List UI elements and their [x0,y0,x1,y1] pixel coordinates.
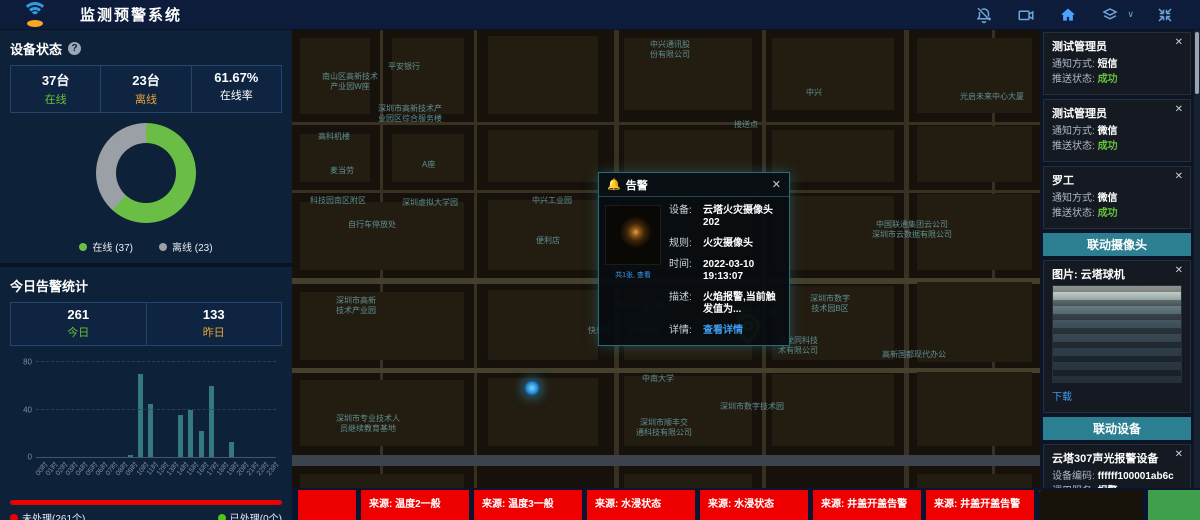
alert-field-value: 火灾摄像头 [703,238,753,250]
map-building-block [488,200,598,270]
bar-12时: 12时 [156,362,165,457]
stat-today: 261 今日 [11,303,147,345]
card-row: 设备编码: ffffff100001ab6c [1052,469,1182,484]
map-device-dot[interactable] [525,381,539,395]
map-building-block [917,372,1032,446]
map-building-block [300,292,464,360]
card-close-icon[interactable]: ✕ [1175,37,1183,48]
online-count: 37台 [11,70,100,89]
map-label: 深圳市数字 技术园B区 [810,294,850,314]
right-panel: ✕测试管理员通知方式: 短信推送状态: 成功✕测试管理员通知方式: 微信推送状态… [1040,30,1194,488]
offline-count: 23台 [101,70,190,89]
map-label: 中兴 [806,88,822,98]
map-building-block [300,202,464,270]
map-building-block [300,474,464,488]
bar-00时: 00时 [36,362,45,457]
camera-image[interactable] [1052,285,1182,383]
bar-19时: 19时 [227,362,236,457]
bar-08时: 08时 [116,362,125,457]
map-label: 平安银行 [388,62,420,72]
alert-fields: 设备:云塔火灾摄像头202规则:火灾摄像头时间:2022-03-10 19:13… [669,205,781,337]
map-label: 中南大学 [642,374,674,384]
device-status-donut-wrap: 在线 (37) 离线 (23) [10,123,282,254]
legend-offline: 离线 (23) [159,239,213,254]
bar-17时: 17时 [207,362,216,457]
card-close-icon[interactable]: ✕ [1175,171,1183,182]
y-tick-40: 40 [16,405,32,414]
map-building-block [488,130,598,182]
card-row: 推送状态: 成功 [1052,72,1182,87]
alert-popup: 🔔 告警 ✕ 共1张, 查看 设备:云塔火灾摄像头202规则:火灾摄像头时间:2… [598,172,790,346]
linked-device-header[interactable]: 联动设备 [1043,417,1191,440]
alert-field: 时间:2022-03-10 19:13:07 [669,259,781,283]
bar-04时: 04时 [76,362,85,457]
unhandled-legend: 未处理(261个) [10,510,85,520]
map-building-block [488,290,598,360]
legend-online: 在线 (37) [79,239,133,254]
bar-02时: 02时 [56,362,65,457]
card-row: 推送状态: 成功 [1052,139,1182,154]
card-row: 通知方式: 短信 [1052,57,1182,72]
bar-20时: 20时 [237,362,246,457]
map-label: 便利店 [536,236,560,246]
alert-field-value: 火焰报警,当前触发值为... [703,292,781,316]
card-close-icon[interactable]: ✕ [1175,104,1183,115]
map-building-block [772,38,894,110]
alert-tile[interactable]: 来源: 水浸状态 [700,490,808,520]
linked-camera-header[interactable]: 联动摄像头 [1043,233,1191,256]
alert-tile[interactable]: 来源: 温度3一般 [474,490,582,520]
card-row: 推送状态: 成功 [1052,206,1182,221]
bar-05时: 05时 [86,362,95,457]
alert-snapshot-caption[interactable]: 共1张, 查看 [605,270,661,280]
map-label: 中国联通集团云公司 深圳市云数据有限公司 [872,220,952,240]
bar-18时: 18时 [217,362,226,457]
online-rate-value: 61.67% [192,70,281,85]
layers-icon[interactable] [1101,6,1121,24]
yesterday-count: 133 [147,307,282,322]
card-title: 测试管理员 [1052,38,1182,54]
offline-label: 离线 [101,91,190,107]
map-label: 南山区高新技术 产业园W座 [322,72,378,92]
bar-09时: 09时 [126,362,135,457]
bar-03时: 03时 [66,362,75,457]
app-logo-icon [12,2,58,28]
alert-popup-header: 🔔 告警 ✕ [599,173,789,197]
device-status-donut-chart [96,123,196,223]
online-label: 在线 [11,91,100,107]
alarm-progress-bar [10,500,282,505]
stat-online: 37台 在线 [11,66,101,112]
alarm-bar-chart-bars: 00时01时02时03时04时05时06时07时08时09时10时11时12时1… [36,362,276,457]
card-row: 通知方式: 微信 [1052,124,1182,139]
alert-field-label: 时间: [669,259,703,283]
map-building-block [624,474,752,488]
card-title: 云塔307声光报警设备 [1052,450,1182,466]
online-rate-label: 在线率 [192,87,281,103]
alert-tile-partial[interactable] [298,490,356,520]
stat-offline: 23台 离线 [101,66,191,112]
exit-fullscreen-icon[interactable] [1156,6,1176,24]
download-link[interactable]: 下载 [1052,388,1072,403]
bar-23时: 23时 [267,362,276,457]
map-label: 深圳市顺丰交 通科技有限公司 [636,418,692,438]
map-label: 自行车停放处 [348,220,396,230]
map-label: 深圳市高新 技术产业园 [336,296,376,316]
map-label: 光启未来中心大厦 [960,92,1024,102]
bar-11时: 11时 [146,362,155,457]
home-icon[interactable] [1059,6,1079,24]
left-panel: 设备状态 ? 37台 在线 23台 离线 61.67% 在线率 [0,30,292,520]
map-label: 科技园南区附区 [310,196,366,206]
view-detail-link[interactable]: 查看详情 [703,325,743,337]
map-label: 深圳市高新技术产 业园区综合服务楼 [378,104,442,124]
map-label: 中兴通讯股 份有限公司 [650,40,690,60]
alert-field: 设备:云塔火灾摄像头202 [669,205,781,229]
video-camera-icon[interactable] [1017,6,1037,24]
map-road [474,30,477,488]
device-status-table: 37台 在线 23台 离线 61.67% 在线率 [10,65,282,113]
bar-13时: 13时 [166,362,175,457]
notification-card: ✕测试管理员通知方式: 短信推送状态: 成功 [1043,32,1191,95]
bar-06时: 06时 [96,362,105,457]
alert-field-value: 云塔火灾摄像头202 [703,205,781,229]
map-label: 深圳虚拟大学园 [402,198,458,208]
y-tick-80: 80 [16,358,32,367]
alarm-progress-legend: 未处理(261个) 已处理(0个) [10,510,282,520]
device-status-section: 设备状态 ? 37台 在线 23台 离线 61.67% 在线率 [0,30,292,254]
map-building-block [392,134,464,182]
alert-field-value: 2022-03-10 19:13:07 [703,259,781,283]
camera-card-close-icon[interactable]: ✕ [1175,265,1183,276]
map-label: 高科机楼 [318,132,350,142]
map-building-block [488,378,598,446]
help-icon[interactable]: ? [68,42,81,55]
bar-21时: 21时 [247,362,256,457]
camera-card-title: 图片: 云塔球机 [1052,266,1182,282]
bar-15时: 15时 [186,362,195,457]
alert-tile[interactable]: 来源: 温度2一般 [361,490,469,520]
chevron-down-icon[interactable]: ∨ [1127,9,1134,20]
bar-07时: 07时 [106,362,115,457]
card-title: 测试管理员 [1052,105,1182,121]
map-road [292,455,1040,466]
alert-tile[interactable]: 来源: 水浸状态 [587,490,695,520]
card-close-icon[interactable]: ✕ [1175,449,1183,460]
alarm-hour-chart: 00时01时02时03时04时05时06时07时08时09时10时11时12时1… [10,354,282,492]
yesterday-label: 昨日 [147,324,282,340]
alert-popup-title: 告警 [626,177,648,193]
map-building-block [917,474,1032,488]
donut-legend: 在线 (37) 离线 (23) [79,239,212,254]
map-building-block [917,126,1032,182]
bar-14时: 14时 [176,362,185,457]
bottom-alert-strip: 来源: 温度2一般来源: 温度3一般来源: 水浸状态来源: 水浸状态来源: 井盖… [292,488,1200,520]
header: 监测预警系统 ∨ [0,0,1200,30]
device-status-title: 设备状态 ? [10,36,282,62]
map-building-block [772,374,894,446]
camera-card: ✕ 图片: 云塔球机 下载 [1043,260,1191,413]
alert-field: 描述:火焰报警,当前触发值为... [669,292,781,316]
bar-01时: 01时 [46,362,55,457]
map-label: 高新国都现代办公 [882,350,946,360]
card-row: 通知方式: 微信 [1052,191,1182,206]
right-scrollbar-thumb[interactable] [1195,32,1199,94]
alarm-progress-fill [10,500,282,505]
monitoring-dashboard: 监测预警系统 ∨ 设备状态 ? [0,0,1200,520]
right-scrollbar [1194,30,1200,488]
card-title: 罗工 [1052,172,1182,188]
map-label: 接送点 [734,120,758,130]
alert-video-thumbnail-green[interactable] [1148,490,1200,520]
map-building-block [772,130,894,182]
map-building-block [300,380,464,446]
alert-field-label: 详情: [669,325,703,337]
bar-16时: 16时 [197,362,206,457]
bar-10时: 10时 [136,362,145,457]
bar-22时: 22时 [257,362,266,457]
alert-tile[interactable]: 来源: 井盖开盖告警 [926,490,1034,520]
stat-online-rate: 61.67% 在线率 [192,66,281,112]
map-label: A座 [422,160,435,170]
device-status-title-text: 设备状态 [10,39,62,58]
today-label: 今日 [11,324,146,340]
map-building-block [488,36,598,114]
bell-mute-icon[interactable] [975,6,995,24]
alert-video-thumbnail[interactable] [1039,490,1143,520]
notification-card: ✕测试管理员通知方式: 微信推送状态: 成功 [1043,99,1191,162]
alert-popup-body: 共1张, 查看 设备:云塔火灾摄像头202规则:火灾摄像头时间:2022-03-… [599,197,789,345]
today-count: 261 [11,307,146,322]
map-canvas[interactable]: 中兴通讯股 份有限公司平安银行南山区高新技术 产业园W座中兴光启未来中心大厦深圳… [292,30,1040,488]
notification-card: ✕罗工通知方式: 微信推送状态: 成功 [1043,166,1191,229]
alert-field-label: 描述: [669,292,703,316]
stat-yesterday: 133 昨日 [147,303,282,345]
today-alarm-section: 今日告警统计 261 今日 133 昨日 00时01时02时03时04时05时0… [0,267,292,520]
y-tick-0: 0 [16,453,32,462]
page-title: 监测预警系统 [80,4,182,25]
alert-popup-close-icon[interactable]: ✕ [772,178,781,191]
map-road [904,30,909,488]
alert-field: 规则:火灾摄像头 [669,238,781,250]
map-label: 麦当劳 [330,166,354,176]
alert-field: 详情:查看详情 [669,325,781,337]
today-alarm-title: 今日告警统计 [10,276,88,295]
alert-tile[interactable]: 来源: 井盖开盖告警 [813,490,921,520]
alert-field-label: 规则: [669,238,703,250]
today-alarm-table: 261 今日 133 昨日 [10,302,282,346]
header-icon-bar: ∨ [975,6,1200,24]
map-label: 深圳市专业技术人 员继续教育基地 [336,414,400,434]
handled-legend: 已处理(0个) [218,510,282,520]
map-label: 中兴工业园 [532,196,572,206]
map-building-block [392,38,464,114]
map-label: 深圳市数字技术园 [720,402,784,412]
alarm-bell-icon: 🔔 [607,178,621,191]
alert-snapshot-image[interactable] [605,205,661,265]
alert-field-label: 设备: [669,205,703,229]
